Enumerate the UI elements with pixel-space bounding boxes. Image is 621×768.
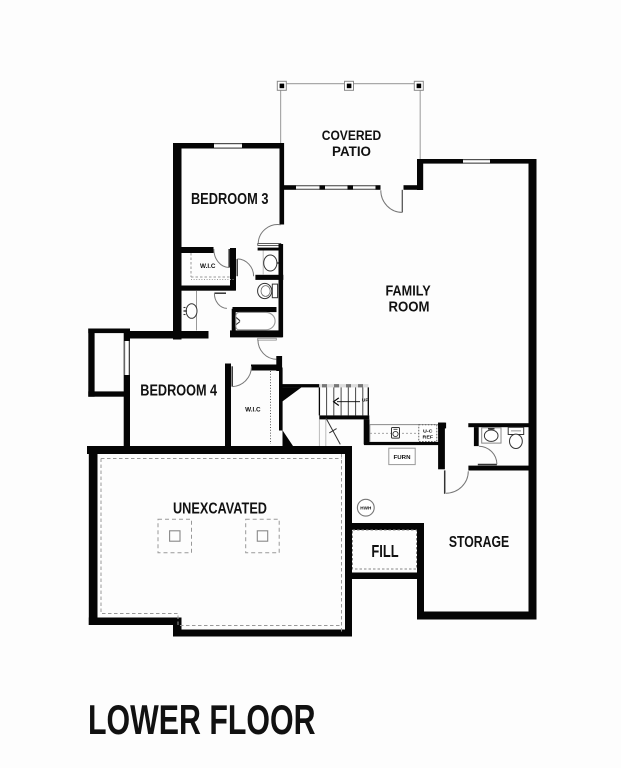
- svg-text:COVERED: COVERED: [322, 128, 382, 144]
- svg-text:BEDROOM 4: BEDROOM 4: [140, 382, 217, 399]
- svg-text:UP: UP: [362, 397, 369, 403]
- svg-text:ROOM: ROOM: [389, 299, 430, 315]
- svg-text:REF: REF: [423, 435, 434, 441]
- svg-text:W.I.C: W.I.C: [245, 407, 261, 414]
- svg-text:STORAGE: STORAGE: [449, 534, 509, 551]
- svg-text:BEDROOM 3: BEDROOM 3: [191, 191, 269, 208]
- svg-text:FAMILY: FAMILY: [386, 284, 431, 300]
- svg-text:UNEXCAVATED: UNEXCAVATED: [173, 501, 267, 518]
- svg-text:FILL: FILL: [371, 541, 398, 561]
- svg-text:LOWER FLOOR: LOWER FLOOR: [88, 696, 316, 743]
- svg-text:HWH: HWH: [360, 506, 372, 511]
- svg-text:PATIO: PATIO: [332, 144, 371, 160]
- svg-text:FURN: FURN: [394, 455, 411, 461]
- svg-text:W.I.C: W.I.C: [200, 263, 216, 270]
- svg-text:U-C: U-C: [423, 428, 433, 434]
